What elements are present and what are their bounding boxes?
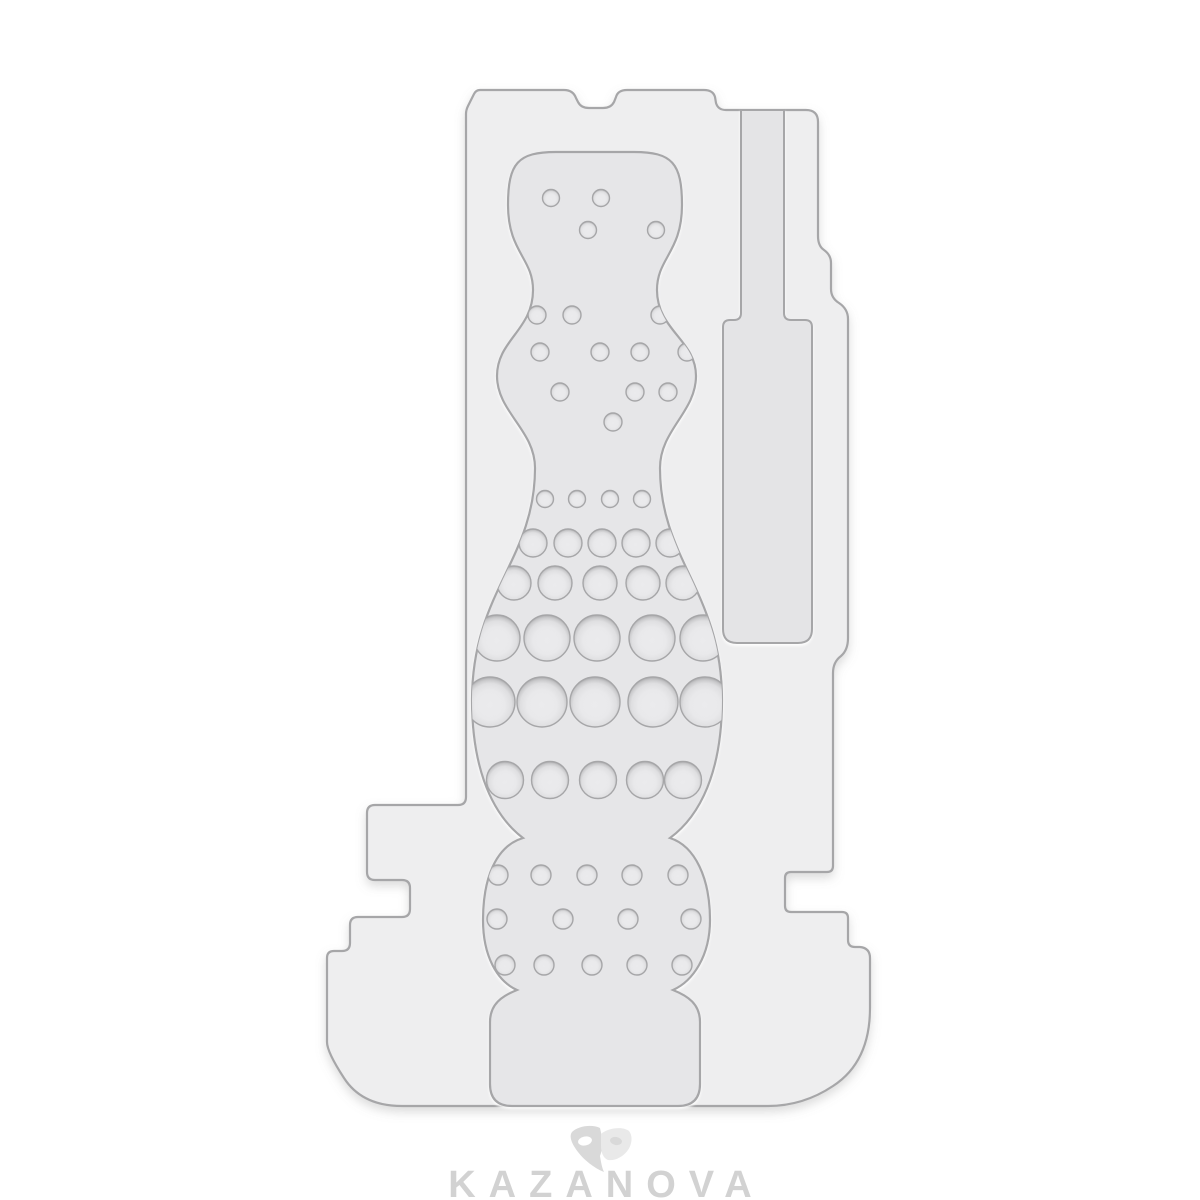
texture-dimple: [622, 865, 642, 885]
texture-dimple: [604, 413, 622, 431]
texture-dimple: [602, 491, 619, 508]
texture-dimple: [554, 529, 582, 557]
texture-dimple: [487, 909, 507, 929]
texture-dimple: [626, 383, 644, 401]
product-photo-canvas: KAZANOVA: [0, 0, 1200, 1200]
texture-dimple: [634, 491, 651, 508]
texture-dimple: [627, 955, 647, 975]
texture-dimple: [580, 222, 597, 239]
texture-dimple: [618, 909, 638, 929]
texture-dimple: [569, 491, 586, 508]
texture-dimple: [524, 615, 570, 661]
texture-dimple: [551, 383, 569, 401]
texture-dimple: [627, 762, 664, 799]
texture-dimple: [628, 677, 678, 727]
texture-dimple: [672, 955, 692, 975]
texture-dimple: [591, 343, 609, 361]
texture-dimple: [588, 529, 616, 557]
texture-dimple: [622, 529, 650, 557]
texture-dimple: [531, 343, 549, 361]
texture-dimple: [665, 762, 702, 799]
texture-dimple: [631, 343, 649, 361]
texture-dimple: [659, 383, 677, 401]
texture-dimple: [528, 306, 546, 324]
texture-dimple: [495, 955, 515, 975]
texture-dimple: [626, 566, 660, 600]
texture-dimple: [593, 190, 610, 207]
texture-dimple: [583, 566, 617, 600]
texture-dimple: [538, 566, 572, 600]
brand-name: KAZANOVA: [448, 1164, 765, 1200]
texture-dimple: [668, 865, 688, 885]
texture-dimple: [531, 865, 551, 885]
texture-dimple: [580, 762, 617, 799]
texture-dimple: [582, 955, 602, 975]
texture-dimple: [648, 222, 665, 239]
texture-dimple: [574, 615, 620, 661]
texture-dimple: [487, 762, 524, 799]
texture-dimple: [553, 909, 573, 929]
texture-dimple: [532, 762, 569, 799]
texture-dimple: [537, 491, 554, 508]
texture-dimple: [681, 909, 701, 929]
texture-dimple: [577, 865, 597, 885]
texture-dimple: [517, 677, 567, 727]
brand-watermark: KAZANOVA: [0, 1166, 1200, 1200]
texture-dimple: [563, 306, 581, 324]
texture-dimple: [543, 190, 560, 207]
product-figure: [0, 0, 1200, 1200]
texture-dimple: [534, 955, 554, 975]
texture-dimple: [570, 677, 620, 727]
texture-dimple: [629, 615, 675, 661]
